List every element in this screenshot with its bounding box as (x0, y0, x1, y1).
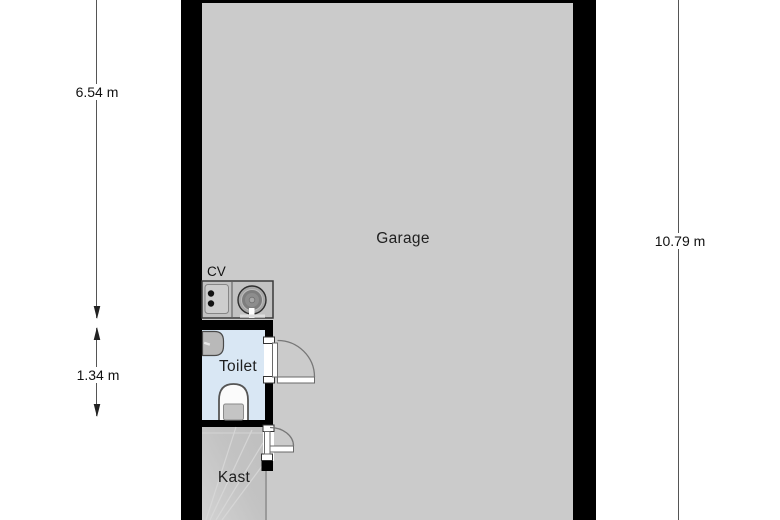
room-label-garage: Garage (376, 230, 430, 248)
arrow-up-icon (94, 327, 101, 340)
wall-outer-right (573, 0, 596, 520)
wall-top-sliver (181, 0, 596, 3)
wall-interior-vertical (265, 320, 273, 471)
dimension-label-1079: 10.79 m (651, 233, 710, 249)
dimension-arrow-icons (94, 306, 101, 417)
dimension-label-654: 6.54 m (72, 84, 123, 100)
floorplan-canvas: 6.54 m 1.34 m 10.79 m Garage Toilet Kast… (0, 0, 780, 520)
room-label-kast: Kast (218, 469, 250, 487)
cv-unit-label: CV (207, 264, 226, 279)
dimension-line-654 (96, 0, 97, 318)
wall-toilet-kast (202, 420, 273, 427)
wall-outer-left (181, 0, 202, 520)
dimension-label-134: 1.34 m (73, 367, 124, 383)
room-label-toilet: Toilet (219, 358, 257, 376)
arrow-down-icon (94, 404, 101, 417)
dimension-line-1079 (678, 0, 679, 520)
arrow-down-icon (94, 306, 101, 319)
wall-toilet-top (202, 320, 273, 330)
